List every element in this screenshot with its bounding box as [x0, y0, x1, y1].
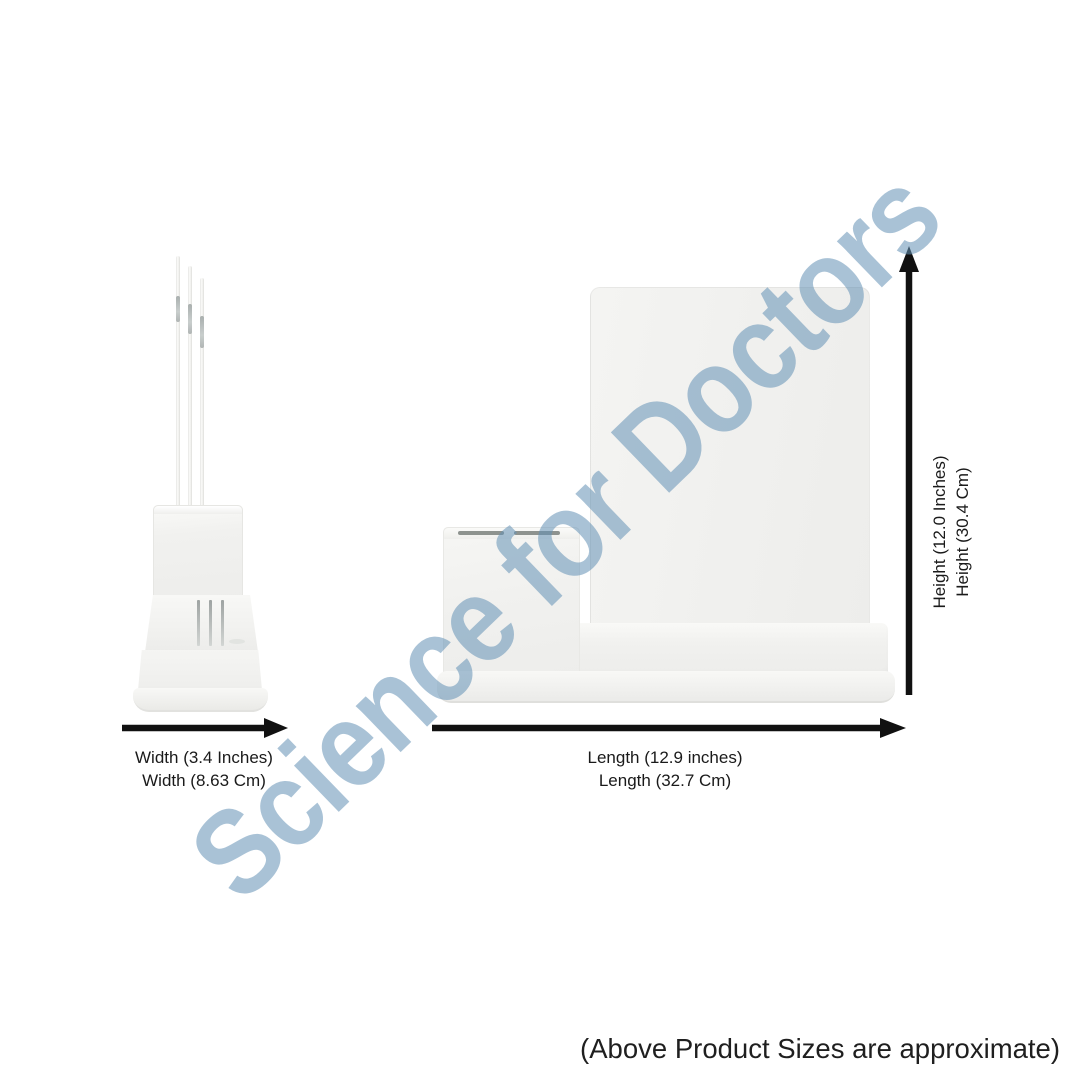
base-tray: [437, 671, 895, 703]
organizer-base: [138, 650, 262, 690]
slope-slit: [221, 600, 224, 646]
pen-cup-side: [153, 505, 243, 601]
rod-metal-tip: [200, 316, 204, 348]
width-dimension-label: Width (3.4 Inches) Width (8.63 Cm): [118, 746, 290, 792]
height-dimension-arrow: [895, 244, 923, 700]
pen-cup-rim: [154, 506, 242, 514]
length-cm-text: Length (32.7 Cm): [545, 769, 785, 792]
product-side-view-photo: [118, 248, 283, 714]
approximate-sizes-note: (Above Product Sizes are approximate): [580, 1033, 1060, 1065]
organizer-slope: [145, 595, 258, 652]
rod-metal-tip: [188, 304, 192, 334]
pen-cup-rim: [444, 528, 579, 539]
length-inches-text: Length (12.9 inches): [545, 746, 785, 769]
slope-slit: [209, 600, 212, 646]
width-cm-text: Width (8.63 Cm): [118, 769, 290, 792]
organizer-foot: [133, 688, 268, 712]
sign-board: [590, 287, 870, 635]
length-dimension-label: Length (12.9 inches) Length (32.7 Cm): [545, 746, 785, 792]
slope-recess: [229, 639, 245, 644]
length-dimension-arrow: [428, 714, 910, 742]
height-cm-text: Height (30.4 Cm): [951, 432, 974, 632]
width-inches-text: Width (3.4 Inches): [118, 746, 290, 769]
width-dimension-arrow: [118, 714, 290, 742]
rod-metal-tip: [176, 296, 180, 322]
product-front-view-photo: [435, 283, 897, 705]
slope-slit: [197, 600, 200, 646]
pen-cup-front: [443, 527, 580, 677]
height-inches-text: Height (12.0 Inches): [928, 432, 951, 632]
cup-divider-slot: [514, 531, 560, 535]
height-dimension-label: Height (12.0 Inches) Height (30.4 Cm): [928, 432, 974, 632]
cup-divider-slot: [458, 531, 504, 535]
